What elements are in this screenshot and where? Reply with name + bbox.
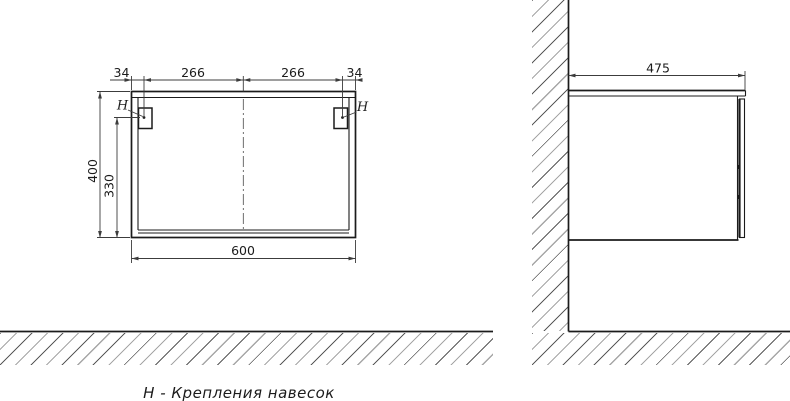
- dimension-overall-width: 600: [132, 240, 356, 263]
- dimension-overall-depth: 475: [569, 61, 746, 90]
- drawing-canvas: Н Н 34 266 266: [0, 0, 790, 401]
- dim-overall-width: 600: [231, 243, 255, 258]
- dim-overall-depth: 475: [646, 61, 670, 76]
- dim-top-right-offset: 34: [347, 65, 363, 80]
- hanger-bracket-right: [334, 108, 348, 129]
- dim-hanger-drop: 330: [102, 174, 117, 198]
- door-panel: [737, 99, 745, 238]
- hanger-left-label: Н: [116, 99, 129, 114]
- technical-drawing-sheet: Н Н 34 266 266: [0, 0, 790, 401]
- legend-caption: Н - Крепления навесок: [143, 384, 335, 401]
- dim-overall-height: 400: [85, 159, 100, 183]
- dimension-hanger-drop: 330: [102, 118, 141, 239]
- dim-top-right-span: 266: [281, 65, 305, 80]
- dim-top-left-offset: 34: [114, 65, 130, 80]
- front-view: Н Н 34 266 266: [85, 65, 369, 263]
- side-view: 475: [569, 0, 790, 332]
- cabinet-side-outline: [569, 91, 746, 241]
- hanger-bracket-left: [139, 108, 153, 129]
- dim-top-left-span: 266: [181, 65, 205, 80]
- hanger-right-label: Н: [356, 100, 369, 115]
